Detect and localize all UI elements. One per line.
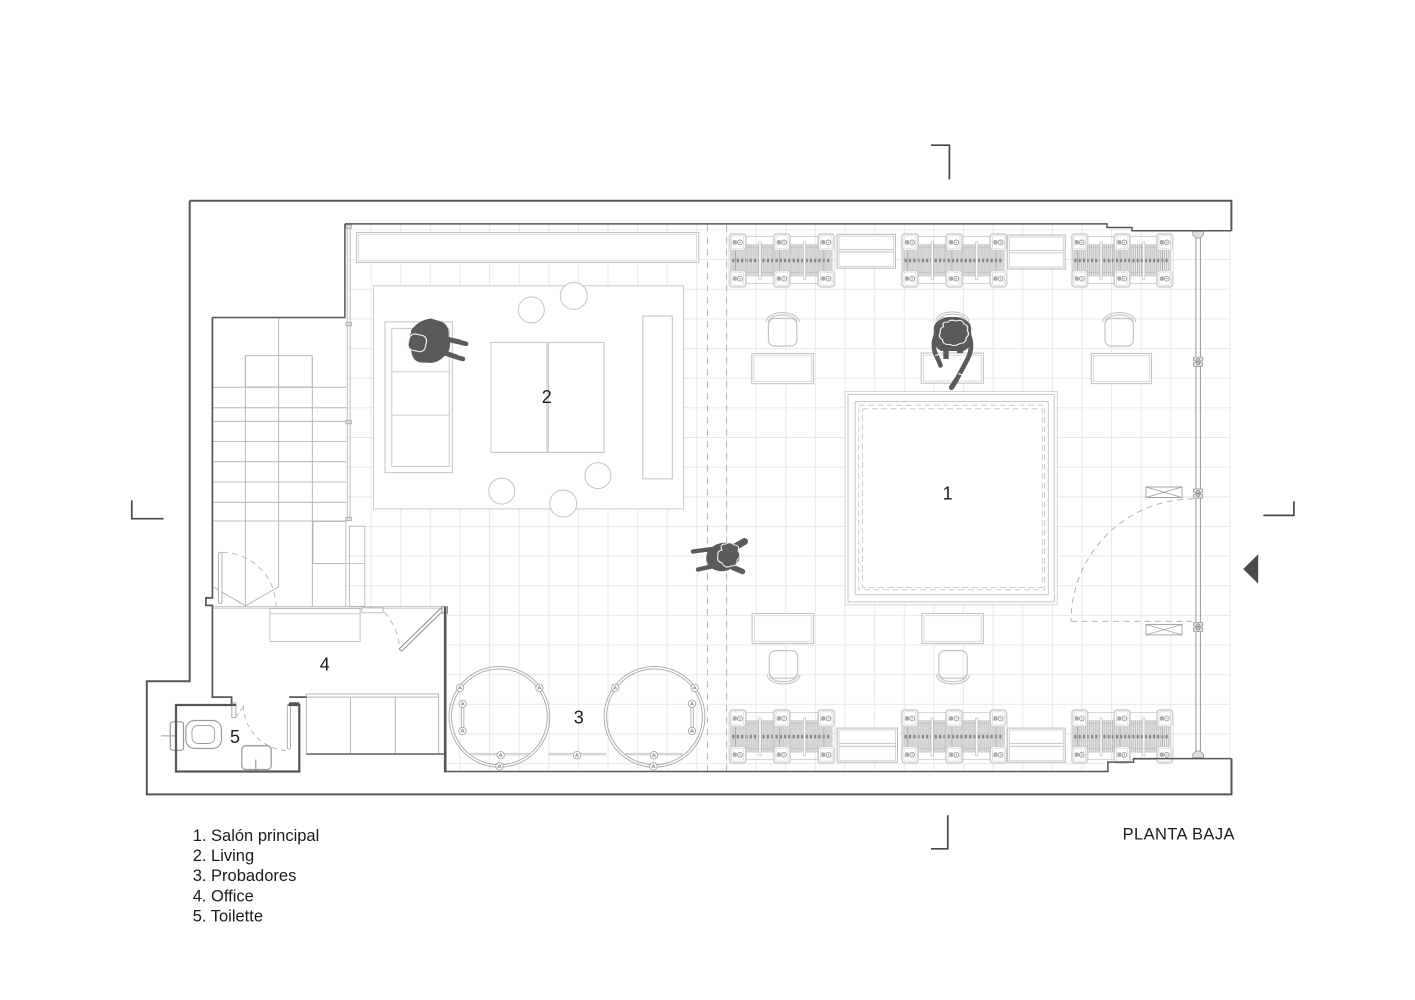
svg-text:2: 2 [542, 387, 552, 407]
svg-text:2. Living: 2. Living [193, 847, 254, 865]
svg-text:4. Office: 4. Office [193, 887, 254, 905]
svg-text:1: 1 [943, 483, 953, 503]
svg-text:1. Salón principal: 1. Salón principal [193, 827, 320, 845]
svg-text:4: 4 [320, 655, 330, 675]
svg-text:PLANTA BAJA: PLANTA BAJA [1123, 825, 1235, 843]
svg-text:3. Probadores: 3. Probadores [193, 867, 297, 885]
svg-text:5: 5 [230, 727, 240, 747]
svg-text:3: 3 [574, 708, 584, 728]
svg-text:5. Toilette: 5. Toilette [193, 907, 263, 925]
